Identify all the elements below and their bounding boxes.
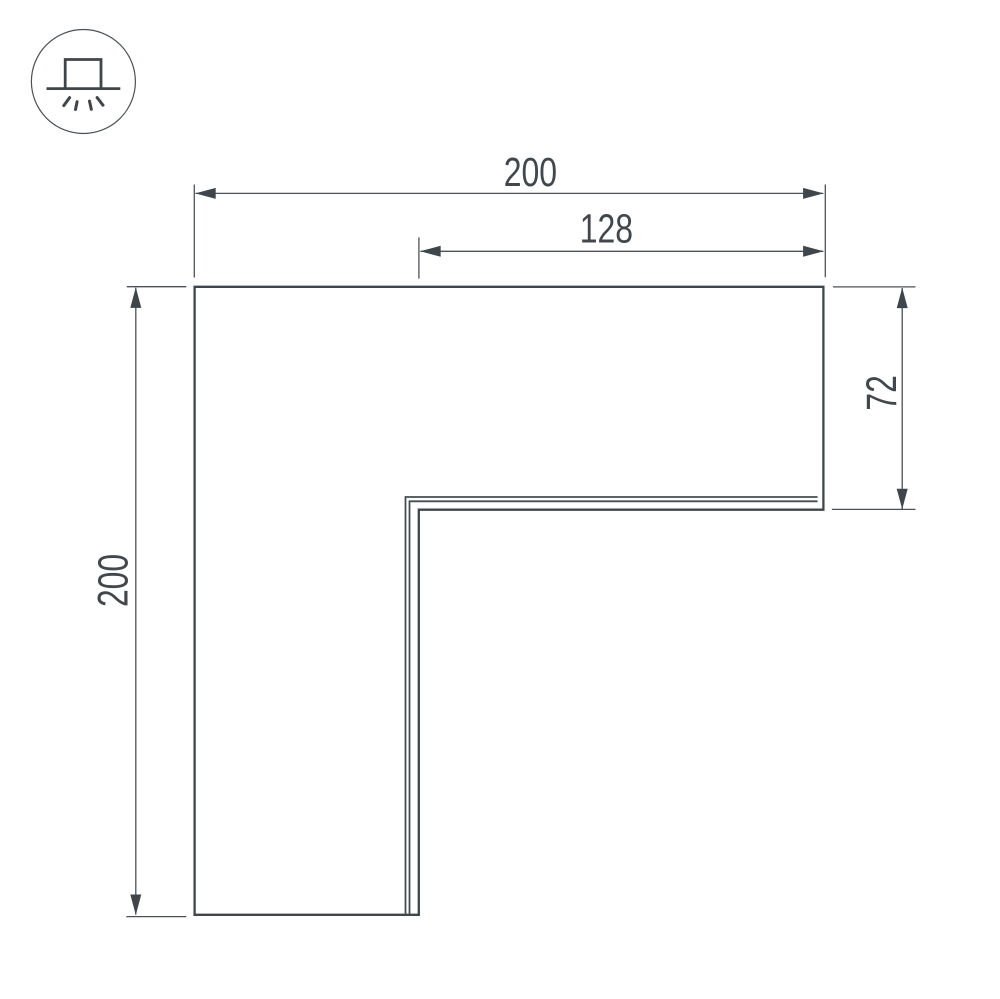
- svg-text:200: 200: [504, 149, 557, 195]
- svg-text:72: 72: [859, 375, 907, 410]
- svg-text:200: 200: [90, 554, 138, 607]
- svg-text:128: 128: [580, 206, 633, 252]
